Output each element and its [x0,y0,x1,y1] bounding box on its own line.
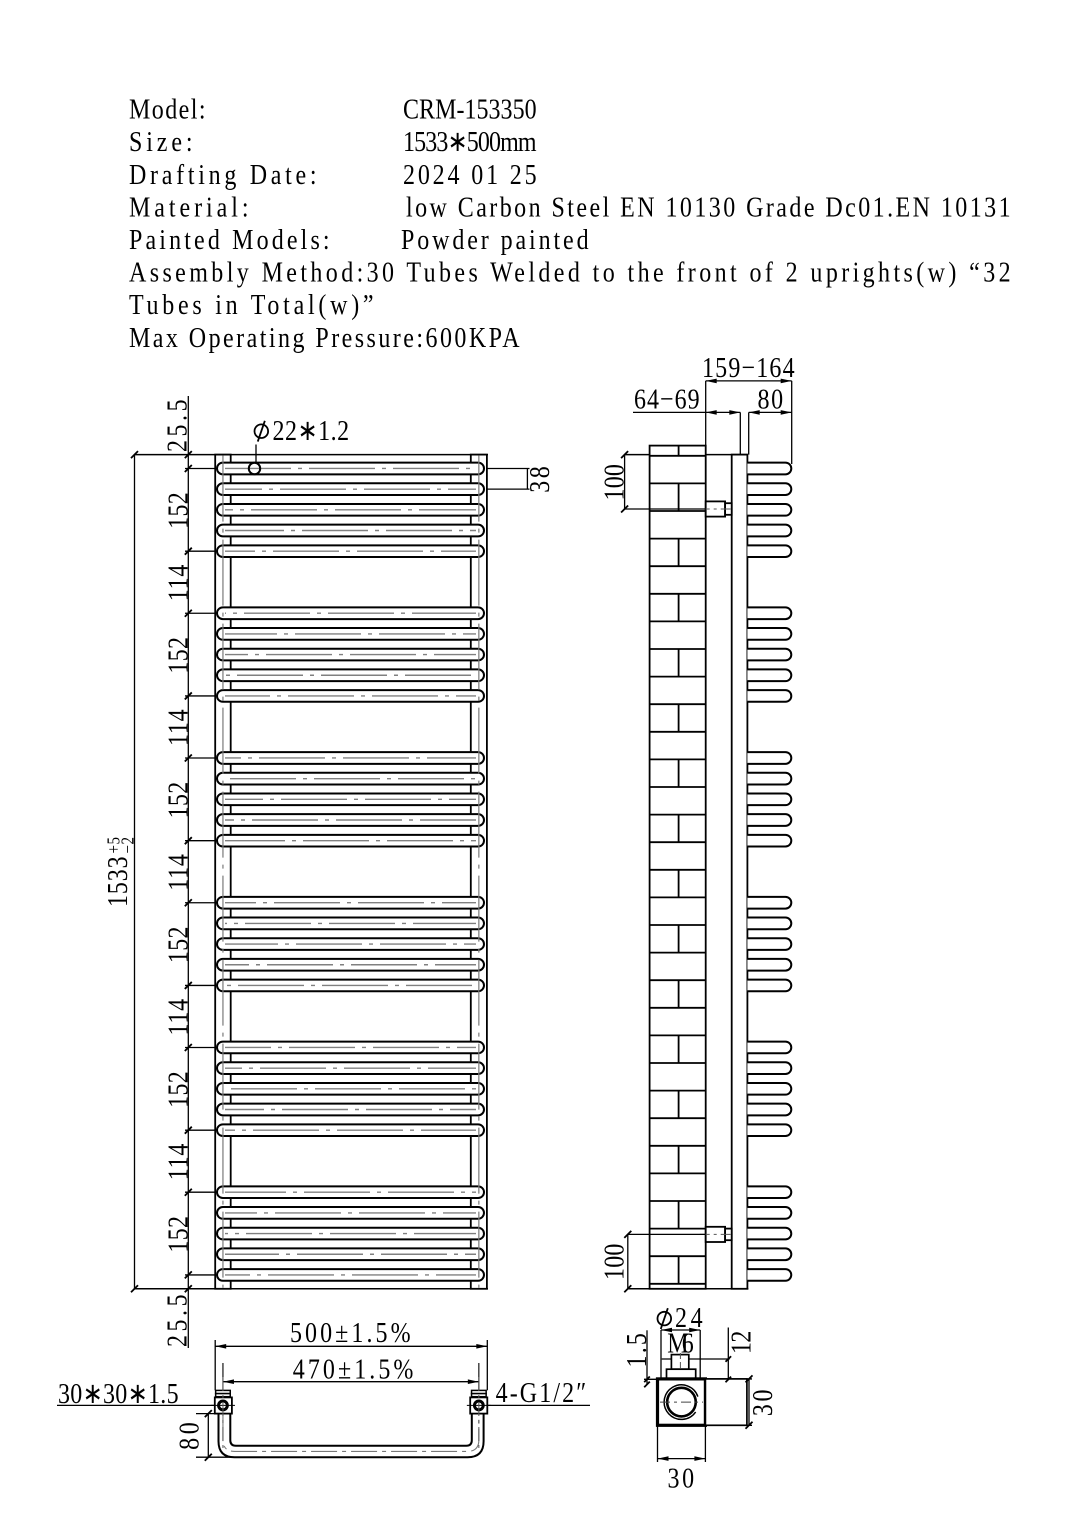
svg-text:low Carbon Steel EN 10130 Grad: low Carbon Steel EN 10130 Grade Dc01.EN … [406,190,1012,223]
svg-text:500±1.5%: 500±1.5% [290,1316,412,1349]
svg-text:4-G1/2″: 4-G1/2″ [496,1376,588,1409]
svg-text:Drafting Date:: Drafting Date: [129,158,318,191]
svg-text:Tubes in Total(w)”: Tubes in Total(w)” [129,288,375,321]
svg-text:100: 100 [597,1243,630,1280]
svg-text:CRM-153350: CRM-153350 [403,93,538,126]
svg-text:2024 01 25: 2024 01 25 [403,158,538,191]
svg-text:100: 100 [597,464,630,501]
svg-text:470±1.5%: 470±1.5% [293,1352,415,1385]
svg-text:152: 152 [161,491,194,529]
svg-text:Model:: Model: [129,93,207,126]
svg-text:152: 152 [161,636,194,674]
svg-text:25.5: 25.5 [160,398,193,452]
svg-text:30∗30∗1.5: 30∗30∗1.5 [58,1377,180,1410]
svg-text:114: 114 [161,1142,194,1180]
svg-text:152: 152 [161,780,194,818]
svg-text:152: 152 [161,925,194,963]
svg-text:Painted Models:: Painted Models: [129,223,331,256]
svg-text:114: 114 [161,563,194,601]
svg-text:Assembly Method:30 Tubes Welde: Assembly Method:30 Tubes Welded to the f… [129,256,1012,289]
svg-text:114: 114 [161,997,194,1035]
svg-text:159−164: 159−164 [702,351,796,384]
svg-text:1533: 1533 [101,855,134,907]
svg-text:152: 152 [161,1215,194,1253]
svg-text:114: 114 [161,853,194,891]
svg-text:25.5: 25.5 [160,1293,193,1347]
svg-text:1533∗500mm: 1533∗500mm [403,125,538,158]
svg-text:114: 114 [161,708,194,746]
svg-text:30: 30 [746,1388,779,1416]
svg-text:1.5: 1.5 [620,1333,653,1368]
svg-text:64−69: 64−69 [634,382,701,415]
svg-text:38: 38 [523,465,556,493]
svg-text:152: 152 [161,1070,194,1108]
svg-text:22∗1.2: 22∗1.2 [273,414,351,447]
svg-text:Material:: Material: [129,190,250,223]
svg-text:80: 80 [758,382,785,415]
svg-text:30: 30 [668,1461,696,1494]
svg-text:−2: −2 [117,837,138,854]
svg-text:12: 12 [724,1330,757,1354]
